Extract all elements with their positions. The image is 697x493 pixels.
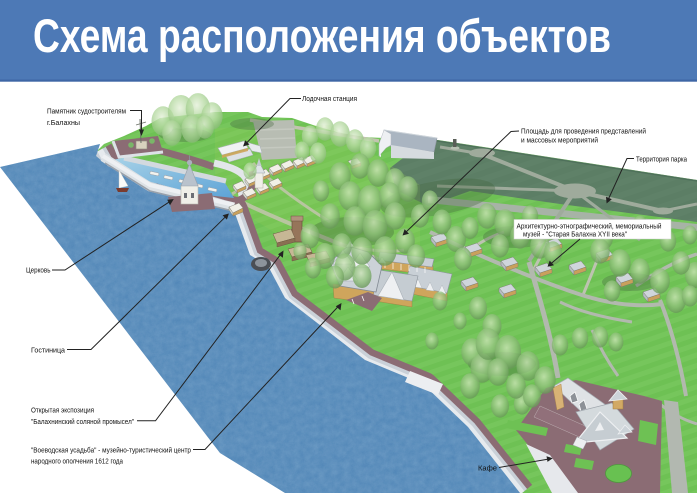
svg-text:"Воеводская усадьба" - музейно: "Воеводская усадьба" - музейно-туристиче… xyxy=(31,447,191,455)
svg-text:Архитектурно-этнографический,: Архитектурно-этнографический, мемориальн… xyxy=(517,223,662,231)
svg-text:Открытая экспозиция: Открытая экспозиция xyxy=(31,408,94,415)
svg-text:Кафе: Кафе xyxy=(478,466,497,473)
svg-text:г.Балахны: г.Балахны xyxy=(47,120,80,127)
svg-text:Территория парка: Территория парка xyxy=(636,157,687,164)
svg-text:музей - "Старая Балахна ХYII в: музей - "Старая Балахна ХYII века" xyxy=(523,231,627,239)
svg-text:Площадь для проведения предста: Площадь для проведения представлений xyxy=(521,128,646,136)
svg-text:народного ополчения 1612 года: народного ополчения 1612 года xyxy=(31,459,123,466)
svg-text:Гостиница: Гостиница xyxy=(31,348,65,355)
svg-text:Лодочная станция: Лодочная станция xyxy=(302,96,357,103)
svg-text:и массовых мероприятий: и массовых мероприятий xyxy=(521,137,598,145)
svg-text:"Балахнинский соляной промысел: "Балахнинский соляной промысел" xyxy=(31,418,134,426)
svg-text:Церковь: Церковь xyxy=(26,268,51,275)
svg-text:Памятник судостроителям: Памятник судостроителям xyxy=(47,109,126,116)
svg-text:Схема расположения объектов: Схема расположения объектов xyxy=(33,9,611,62)
